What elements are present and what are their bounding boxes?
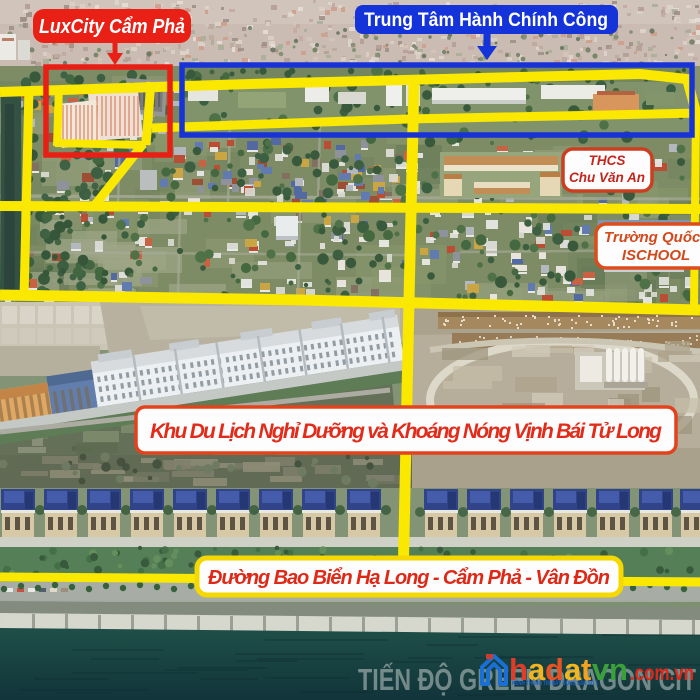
svg-text:Trung Tâm Hành Chính Công: Trung Tâm Hành Chính Công [364, 10, 608, 31]
svg-text:LuxCity Cẩm Phả: LuxCity Cẩm Phả [39, 16, 185, 38]
svg-text:Khu Du Lịch Nghỉ Dưỡng và Khoá: Khu Du Lịch Nghỉ Dưỡng và Khoáng Nóng Vị… [150, 420, 662, 443]
svg-text:THCS: THCS [589, 153, 626, 168]
svg-text:Đường Bao Biển Hạ Long - Cẩm P: Đường Bao Biển Hạ Long - Cẩm Phả - Vân Đ… [208, 567, 610, 589]
svg-text:n: n [609, 652, 628, 687]
svg-text:ISCHOOL: ISCHOOL [622, 247, 690, 264]
svg-text:KÊNH THÔNG TIN BẤT ĐỘNG SẢN SỐ: KÊNH THÔNG TIN BẤT ĐỘNG SẢN SỐ 1 [512, 679, 598, 687]
svg-text:Trường Quốc Tế: Trường Quốc Tế [604, 229, 700, 246]
svg-text:Chu Văn An: Chu Văn An [569, 170, 645, 185]
svg-text:.com.vn: .com.vn [630, 662, 694, 685]
